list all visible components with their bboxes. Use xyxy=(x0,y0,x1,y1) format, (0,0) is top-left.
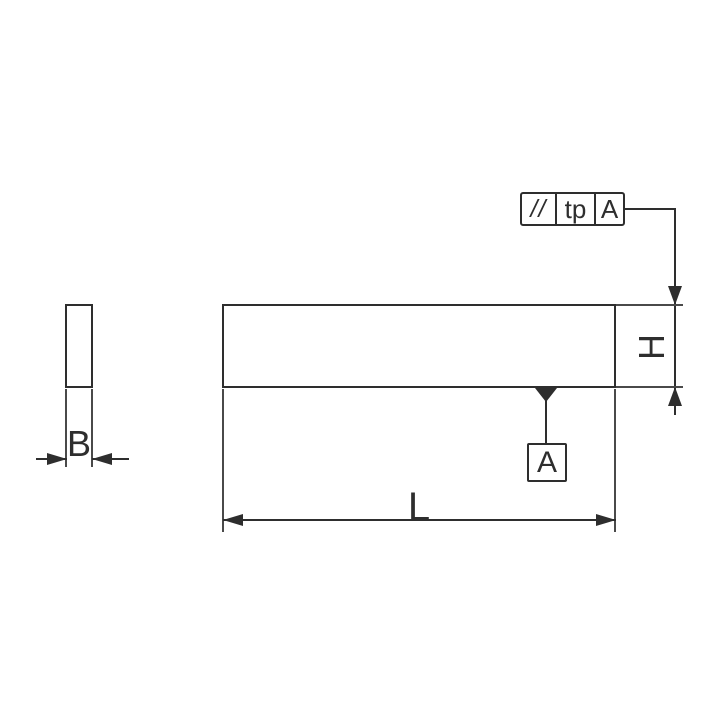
fcf-datum-reference: A xyxy=(594,194,623,224)
parallelism-symbol-icon: // xyxy=(522,194,555,224)
h-dim-arrowhead-bottom-icon xyxy=(668,387,682,406)
datum-label: A xyxy=(537,446,557,480)
l-dimension-label: L xyxy=(408,487,430,527)
front-view-outline xyxy=(222,304,616,388)
b-dimension-label: B xyxy=(67,426,91,462)
fcf-leader-arrowhead-icon xyxy=(668,286,682,305)
l-extension-line-right xyxy=(614,389,616,532)
datum-leader-line xyxy=(545,400,547,444)
l-dim-arrowhead-right-icon xyxy=(596,514,616,526)
l-dim-arrowhead-left-icon xyxy=(223,514,243,526)
feature-control-frame: // tp A xyxy=(520,192,625,226)
b-dim-arrowhead-right-icon xyxy=(92,453,112,465)
l-extension-line-left xyxy=(222,389,224,532)
h-extension-line-top xyxy=(616,304,683,306)
h-dimension-label: H xyxy=(631,328,673,366)
end-view-outline xyxy=(65,304,93,388)
technical-drawing-canvas: // tp A H A L B xyxy=(0,0,720,720)
fcf-leader-horizontal xyxy=(625,208,675,210)
b-dim-arrowhead-left-icon xyxy=(47,453,67,465)
tolerance-value: tp xyxy=(555,194,594,224)
datum-label-box: A xyxy=(527,443,567,482)
fcf-leader-vertical xyxy=(674,208,676,415)
